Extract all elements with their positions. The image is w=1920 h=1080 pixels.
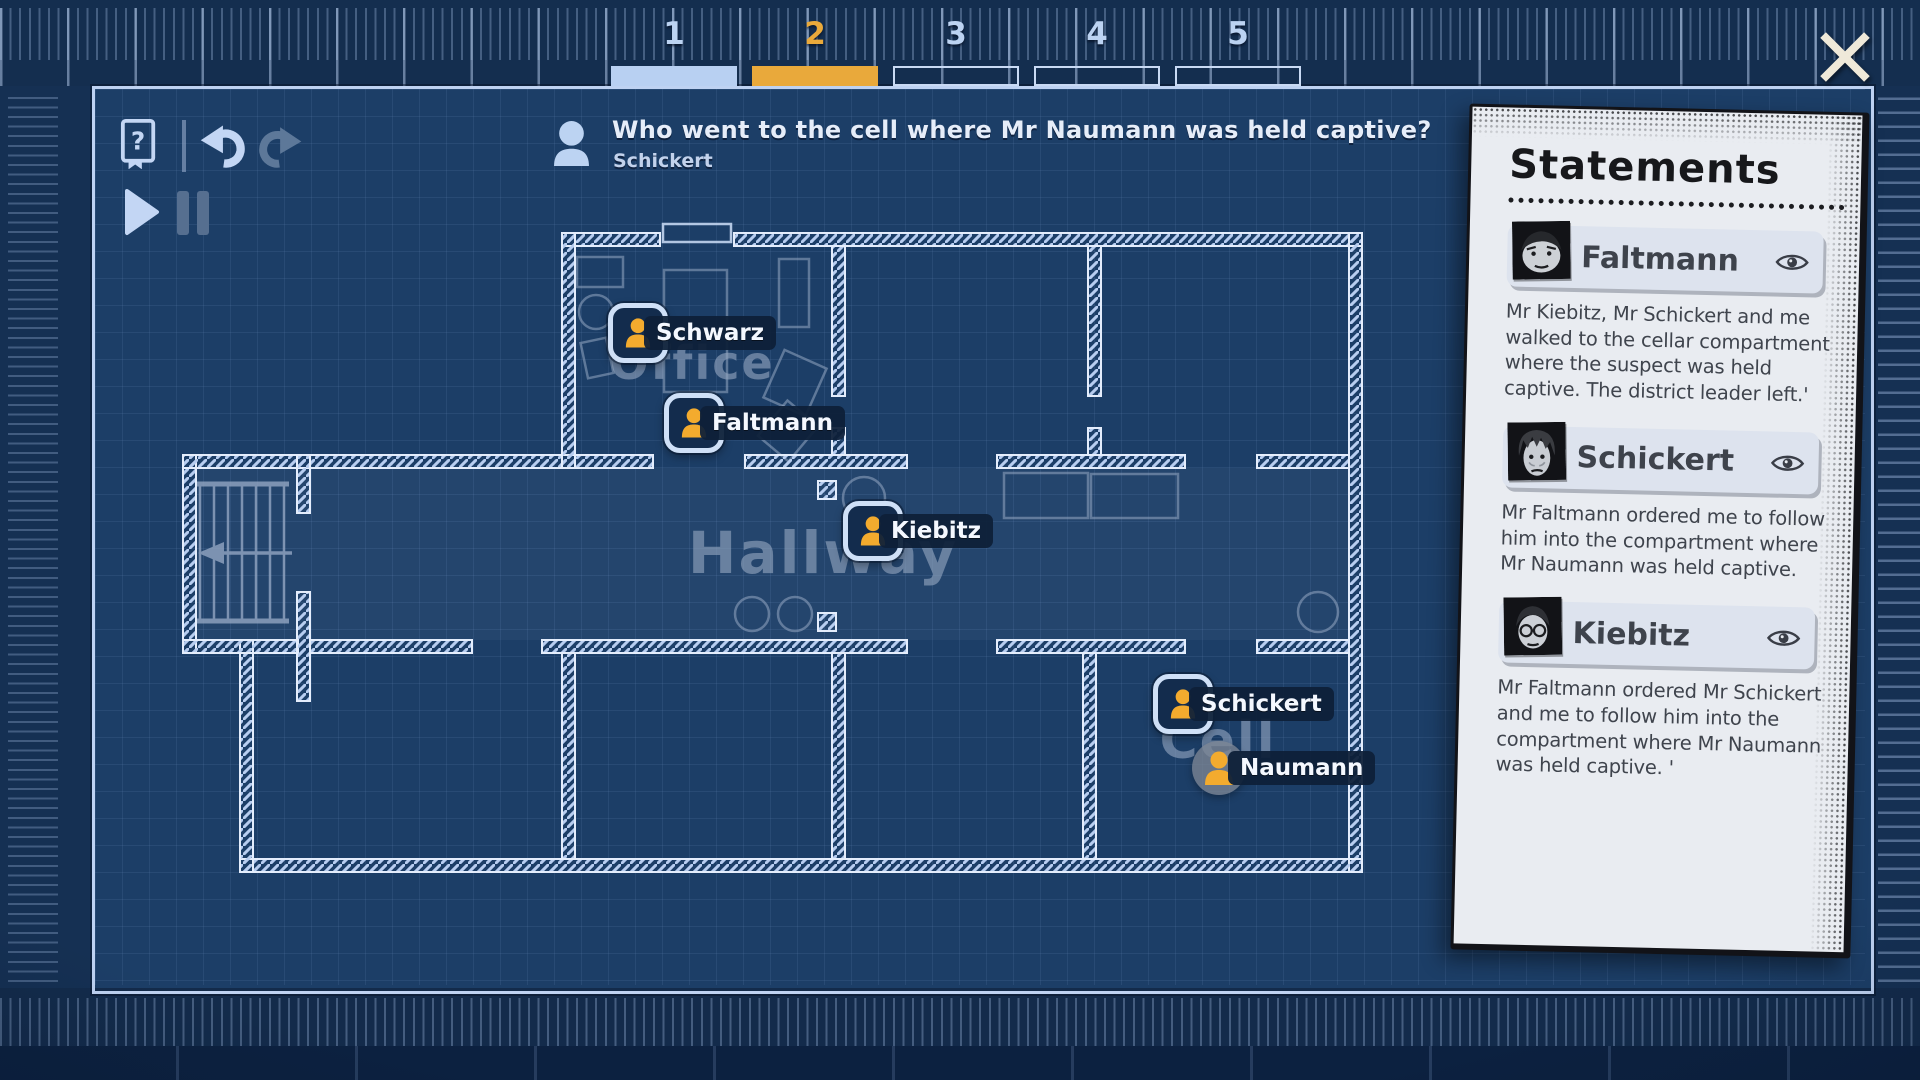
token-naumann-victim[interactable]: Naumann	[1192, 741, 1246, 795]
statement-card-kiebitz: Kiebitz Mr Faltmann ordered Mr Schickert…	[1495, 601, 1827, 785]
token-label: Schickert	[1189, 687, 1334, 721]
statement-header[interactable]: Schickert	[1502, 425, 1819, 494]
statement-name: Faltmann	[1581, 240, 1740, 279]
kiebitz-portrait	[1503, 597, 1562, 656]
token-schickert[interactable]: Schickert	[1153, 674, 1213, 734]
token-label: Schwarz	[644, 316, 776, 350]
statement-name: Schickert	[1576, 441, 1734, 480]
schickert-portrait	[1507, 422, 1566, 481]
faltmann-portrait	[1512, 221, 1571, 280]
statements-panel: Statements Faltmann Mr Kiebitz, Mr Schic…	[1450, 104, 1869, 959]
token-schwarz[interactable]: Schwarz	[608, 303, 668, 363]
statement-card-schickert: Schickert Mr Faltmann ordered me to foll…	[1500, 425, 1831, 584]
close-button[interactable]	[1816, 28, 1874, 86]
statement-header[interactable]: Faltmann	[1507, 224, 1824, 293]
eye-icon[interactable]	[1766, 627, 1800, 649]
statement-text: Mr Faltmann ordered Mr Schickert and me …	[1495, 674, 1837, 785]
statements-title: Statements	[1509, 141, 1838, 194]
token-label: Kiebitz	[879, 514, 993, 548]
eye-icon[interactable]	[1770, 452, 1804, 474]
statement-name: Kiebitz	[1572, 616, 1690, 654]
door-leaf	[663, 224, 731, 242]
token-faltmann[interactable]: Faltmann	[664, 393, 724, 453]
token-label: Faltmann	[700, 406, 845, 440]
dotted-rule	[1508, 197, 1844, 210]
statement-header[interactable]: Kiebitz	[1498, 601, 1815, 670]
statement-text: Mr Kiebitz, Mr Schickert and me walked t…	[1504, 298, 1846, 409]
token-label: Naumann	[1228, 751, 1375, 785]
eye-icon[interactable]	[1775, 251, 1809, 273]
token-kiebitz[interactable]: Kiebitz	[843, 501, 903, 561]
statement-card-faltmann: Faltmann Mr Kiebitz, Mr Schickert and me…	[1504, 224, 1836, 408]
statement-text: Mr Faltmann ordered me to follow him int…	[1500, 499, 1842, 584]
